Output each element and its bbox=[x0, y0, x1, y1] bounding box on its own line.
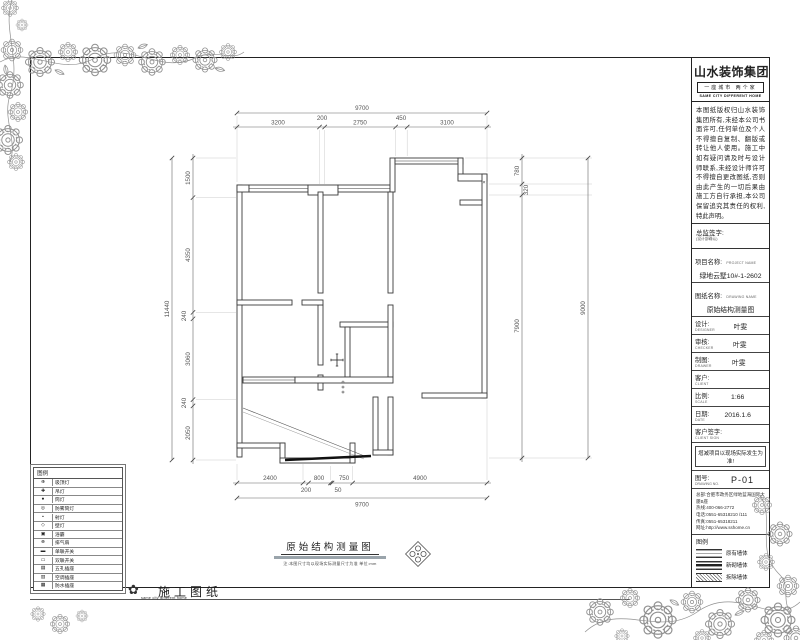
legend-row: ◎ 防雾筒灯 bbox=[34, 505, 122, 514]
logo-tagline: SAME CITY DIFFERENT HOME bbox=[694, 94, 767, 98]
dim-right-seg: 320 bbox=[523, 184, 530, 195]
legend-row: • 射灯 bbox=[34, 513, 122, 522]
dim-bottom-overall: 9700 bbox=[355, 502, 369, 509]
dim-left-seg: 2050 bbox=[185, 426, 192, 440]
contact-line: 热线:400-066-2772 bbox=[696, 505, 765, 512]
legend-label: 空调插座 bbox=[53, 574, 122, 581]
sign-label: 总监签字: bbox=[696, 227, 765, 237]
caption-subtitle: 注:本图尺寸均以现场实际测量尺寸为准 单位:mm bbox=[250, 561, 410, 567]
legend-symbol: ✚ bbox=[34, 488, 53, 495]
field-row: 项目名称: PROJECT NAME 绿地云墅10#-1-2602 bbox=[692, 249, 769, 283]
field-value: 叶雯 bbox=[715, 321, 766, 331]
legend-symbol: ● bbox=[34, 496, 53, 503]
field-label-en: CLIENT SIGN bbox=[695, 436, 722, 440]
logo-name: 山水装饰集团 bbox=[694, 63, 767, 80]
legend-row: ● 筒灯 bbox=[34, 496, 122, 505]
drawing-stamp bbox=[405, 541, 431, 567]
wall-legend-row: 新砌墙体 bbox=[696, 561, 765, 570]
legend-row: ▤ 五孔插座 bbox=[34, 565, 122, 574]
sign-sublabel: (设计部确认) bbox=[696, 237, 765, 242]
legend-symbol: ▭ bbox=[34, 557, 53, 564]
legend-symbol: ▥ bbox=[34, 574, 53, 581]
dim-bottom-seg: 800 bbox=[314, 475, 325, 482]
dim-bottom-seg: 4900 bbox=[413, 475, 427, 482]
wall-legend: 图例 原有墙体 新砌墙体 拆除墙体 bbox=[692, 534, 769, 588]
dim-top-seg: 450 bbox=[396, 115, 407, 122]
legend-label: 防雾筒灯 bbox=[53, 505, 122, 512]
legend-symbol: • bbox=[34, 514, 53, 521]
field-value bbox=[709, 376, 766, 384]
legend-label: 吸顶灯 bbox=[53, 479, 122, 486]
drawing-page: 山水装饰集团 一座城市 两个家 SAME CITY DIFFERENT HOME… bbox=[0, 0, 800, 640]
field-row: 客户签字: CLIENT SIGN bbox=[692, 425, 769, 443]
walls bbox=[237, 158, 487, 463]
field-row: 审核: CHECKER 叶雯 bbox=[692, 335, 769, 353]
floor-plan-svg: 9700 3200 200 2750 450 3100 2400 200 800… bbox=[40, 60, 690, 590]
dim-bottom-seg: 2400 bbox=[263, 475, 277, 482]
dim-right-seg: 7900 bbox=[514, 319, 521, 333]
dim-bottom-seg: 750 bbox=[339, 475, 350, 482]
wall-legend-row: 原有墙体 bbox=[696, 549, 765, 558]
wall-type-symbol bbox=[696, 573, 722, 582]
field-label: 比例: bbox=[695, 391, 709, 400]
field-label: 客户: bbox=[695, 373, 709, 382]
dim-bottom-seg: 200 bbox=[301, 487, 312, 494]
legend-row: ✚ 吊灯 bbox=[34, 488, 122, 497]
footer-title: 施工图纸 bbox=[158, 583, 222, 600]
wall-type-label: 新砌墙体 bbox=[726, 561, 748, 569]
wall-legend-title: 图例 bbox=[696, 537, 765, 546]
field-value: 2016.1.6 bbox=[709, 412, 766, 420]
dim-left-overall: 11440 bbox=[164, 300, 171, 317]
door-dots-icon bbox=[342, 381, 344, 393]
caption-title: 原始结构测量图 bbox=[281, 539, 379, 555]
legend-label: 筒灯 bbox=[53, 496, 122, 503]
wall-type-symbol bbox=[696, 561, 722, 570]
field-label: 日期: bbox=[695, 409, 709, 418]
legend-label: 射灯 bbox=[53, 514, 122, 521]
dim-left-seg: 3060 bbox=[185, 352, 192, 366]
dim-top-seg: 200 bbox=[317, 115, 328, 122]
field-label: 图纸名称: bbox=[695, 293, 722, 300]
wall-type-symbol bbox=[696, 549, 722, 558]
field-row: 日期: DATE 2016.1.6 bbox=[692, 407, 769, 425]
drain-cross-icon bbox=[331, 354, 343, 366]
legend-row: ▣ 浴霸 bbox=[34, 531, 122, 540]
field-label-en: PROJECT NAME bbox=[726, 261, 756, 265]
plan-marks: × bbox=[243, 180, 486, 460]
field-label-en: DATE bbox=[695, 418, 709, 422]
drawing-caption: 原始结构测量图 注:本图尺寸均以现场实际测量尺寸为准 单位:mm bbox=[250, 537, 410, 567]
field-label-en: DRAWER bbox=[695, 364, 712, 368]
sheet-no-label: 图号: bbox=[695, 473, 719, 482]
legend-symbol: ▣ bbox=[34, 531, 53, 538]
dim-top-seg: 2750 bbox=[353, 120, 367, 127]
sheet-no-label-en: DRAWING NO. bbox=[695, 482, 719, 486]
legend-row: ▭ 双联开关 bbox=[34, 556, 122, 565]
field-value bbox=[722, 430, 766, 438]
field-label: 客户签字: bbox=[695, 427, 722, 436]
field-row: 设计: DESIGNER 叶雯 bbox=[692, 317, 769, 335]
footer-line bbox=[30, 599, 630, 600]
legend-symbol: ⊗ bbox=[34, 539, 53, 546]
field-label: 设计: bbox=[695, 319, 715, 328]
contact-line: 网址:http://www.sshome.cn bbox=[696, 525, 765, 532]
legend-label: 双联开关 bbox=[53, 557, 122, 564]
legend-title: 图例 bbox=[34, 468, 122, 479]
sheet-number-row: 图号: DRAWING NO. P-01 bbox=[692, 470, 769, 489]
wall-type-label: 拆除墙体 bbox=[726, 573, 748, 581]
dim-left-seg: 4350 bbox=[185, 248, 192, 262]
field-row: 制图: DRAWER 叶雯 bbox=[692, 353, 769, 371]
field-label: 审核: bbox=[695, 337, 714, 346]
field-value: 叶雯 bbox=[714, 339, 766, 349]
legend-table: 图例 ⊕ 吸顶灯 ✚ 吊灯 ● 筒灯 ◎ 防雾筒灯 • 射灯 ◇ 壁灯 ▣ bbox=[33, 467, 123, 591]
corner-x-mark: × bbox=[482, 180, 485, 186]
legend-row: ⊕ 吸顶灯 bbox=[34, 479, 122, 488]
caption-underline bbox=[274, 556, 386, 559]
field-value: 原始结构测量图 bbox=[695, 304, 766, 314]
field-label-en: DESIGNER bbox=[695, 328, 715, 332]
wall-type-label: 原有墙体 bbox=[726, 549, 748, 557]
field-label-en: DRAWING NAME bbox=[726, 295, 756, 299]
field-row: 客户: CLIENT bbox=[692, 371, 769, 389]
field-value: 绿地云墅10#-1-2602 bbox=[695, 270, 766, 280]
logo-strip: 一座城市 两个家 bbox=[697, 82, 764, 93]
director-sign-row: 总监签字: (设计部确认) bbox=[692, 224, 769, 249]
legend-row: ◇ 壁灯 bbox=[34, 522, 122, 531]
dim-top-seg: 3200 bbox=[271, 120, 285, 127]
contact-line: 总部:合肥市政务区绿地蓝海国际大厦B座 bbox=[696, 492, 765, 505]
field-label: 制图: bbox=[695, 355, 712, 364]
wall-legend-row: 拆除墙体 bbox=[696, 573, 765, 582]
dim-left-seg: 1500 bbox=[185, 171, 192, 185]
dim-top-seg: 3100 bbox=[440, 120, 454, 127]
contact-line: 电话:0551-65318210 /111 bbox=[696, 512, 765, 519]
field-label-en: CHECKER bbox=[695, 346, 714, 350]
field-label-en: SCALE bbox=[695, 400, 709, 404]
legend-symbol: ▬ bbox=[34, 548, 53, 555]
company-contact: 总部:合肥市政务区绿地蓝海国际大厦B座热线:400-066-2772电话:055… bbox=[692, 489, 769, 534]
field-row: 图纸名称: DRAWING NAME 原始结构测量图 bbox=[692, 283, 769, 317]
sheet-no-value: P-01 bbox=[719, 475, 766, 485]
title-block: 山水装饰集团 一座城市 两个家 SAME CITY DIFFERENT HOME… bbox=[691, 58, 769, 587]
dim-left-seg: 240 bbox=[181, 310, 188, 321]
legend-symbol: ◇ bbox=[34, 522, 53, 529]
legend-row: ▥ 空调插座 bbox=[34, 574, 122, 583]
dim-right-overall: 9000 bbox=[580, 301, 587, 315]
field-rows: 项目名称: PROJECT NAME 绿地云墅10#-1-2602 图纸名称: … bbox=[692, 249, 769, 443]
field-value: 叶雯 bbox=[712, 357, 766, 367]
legend-symbol: ⊕ bbox=[34, 479, 53, 486]
dim-right-seg: 780 bbox=[514, 165, 521, 176]
legend-label: 五孔插座 bbox=[53, 565, 122, 572]
copyright-notes: 本图纸版权归山水装饰集团所有,未经本公司书面许可,任何单位及个人不得擅自复制、翻… bbox=[692, 102, 769, 224]
legend-label: 排气扇 bbox=[53, 539, 122, 546]
field-label-en: CLIENT bbox=[695, 382, 709, 386]
dim-bottom-seg: 50 bbox=[335, 487, 342, 494]
legend-row: ▬ 单联开关 bbox=[34, 548, 122, 557]
site-notice: 增减项目以现场实际发生为准! bbox=[695, 446, 766, 467]
dim-left-seg: 240 bbox=[181, 397, 188, 408]
legend-label: 吊灯 bbox=[53, 488, 122, 495]
legend-label: 壁灯 bbox=[53, 522, 122, 529]
legend-symbol: ▤ bbox=[34, 565, 53, 572]
legend-label: 单联开关 bbox=[53, 548, 122, 555]
field-row: 比例: SCALE 1:66 bbox=[692, 389, 769, 407]
company-logo: 山水装饰集团 一座城市 两个家 SAME CITY DIFFERENT HOME bbox=[692, 58, 769, 102]
field-value: 1:66 bbox=[709, 394, 766, 402]
legend-label: 浴霸 bbox=[53, 531, 122, 538]
legend-row: ⊗ 排气扇 bbox=[34, 539, 122, 548]
legend-symbol: ◎ bbox=[34, 505, 53, 512]
footer-flower-icon: ✿ bbox=[128, 582, 139, 598]
dim-top-overall: 9700 bbox=[355, 105, 369, 112]
field-label: 项目名称: bbox=[695, 259, 722, 266]
footer: ✿ same city different home 施工图纸 bbox=[0, 582, 800, 622]
